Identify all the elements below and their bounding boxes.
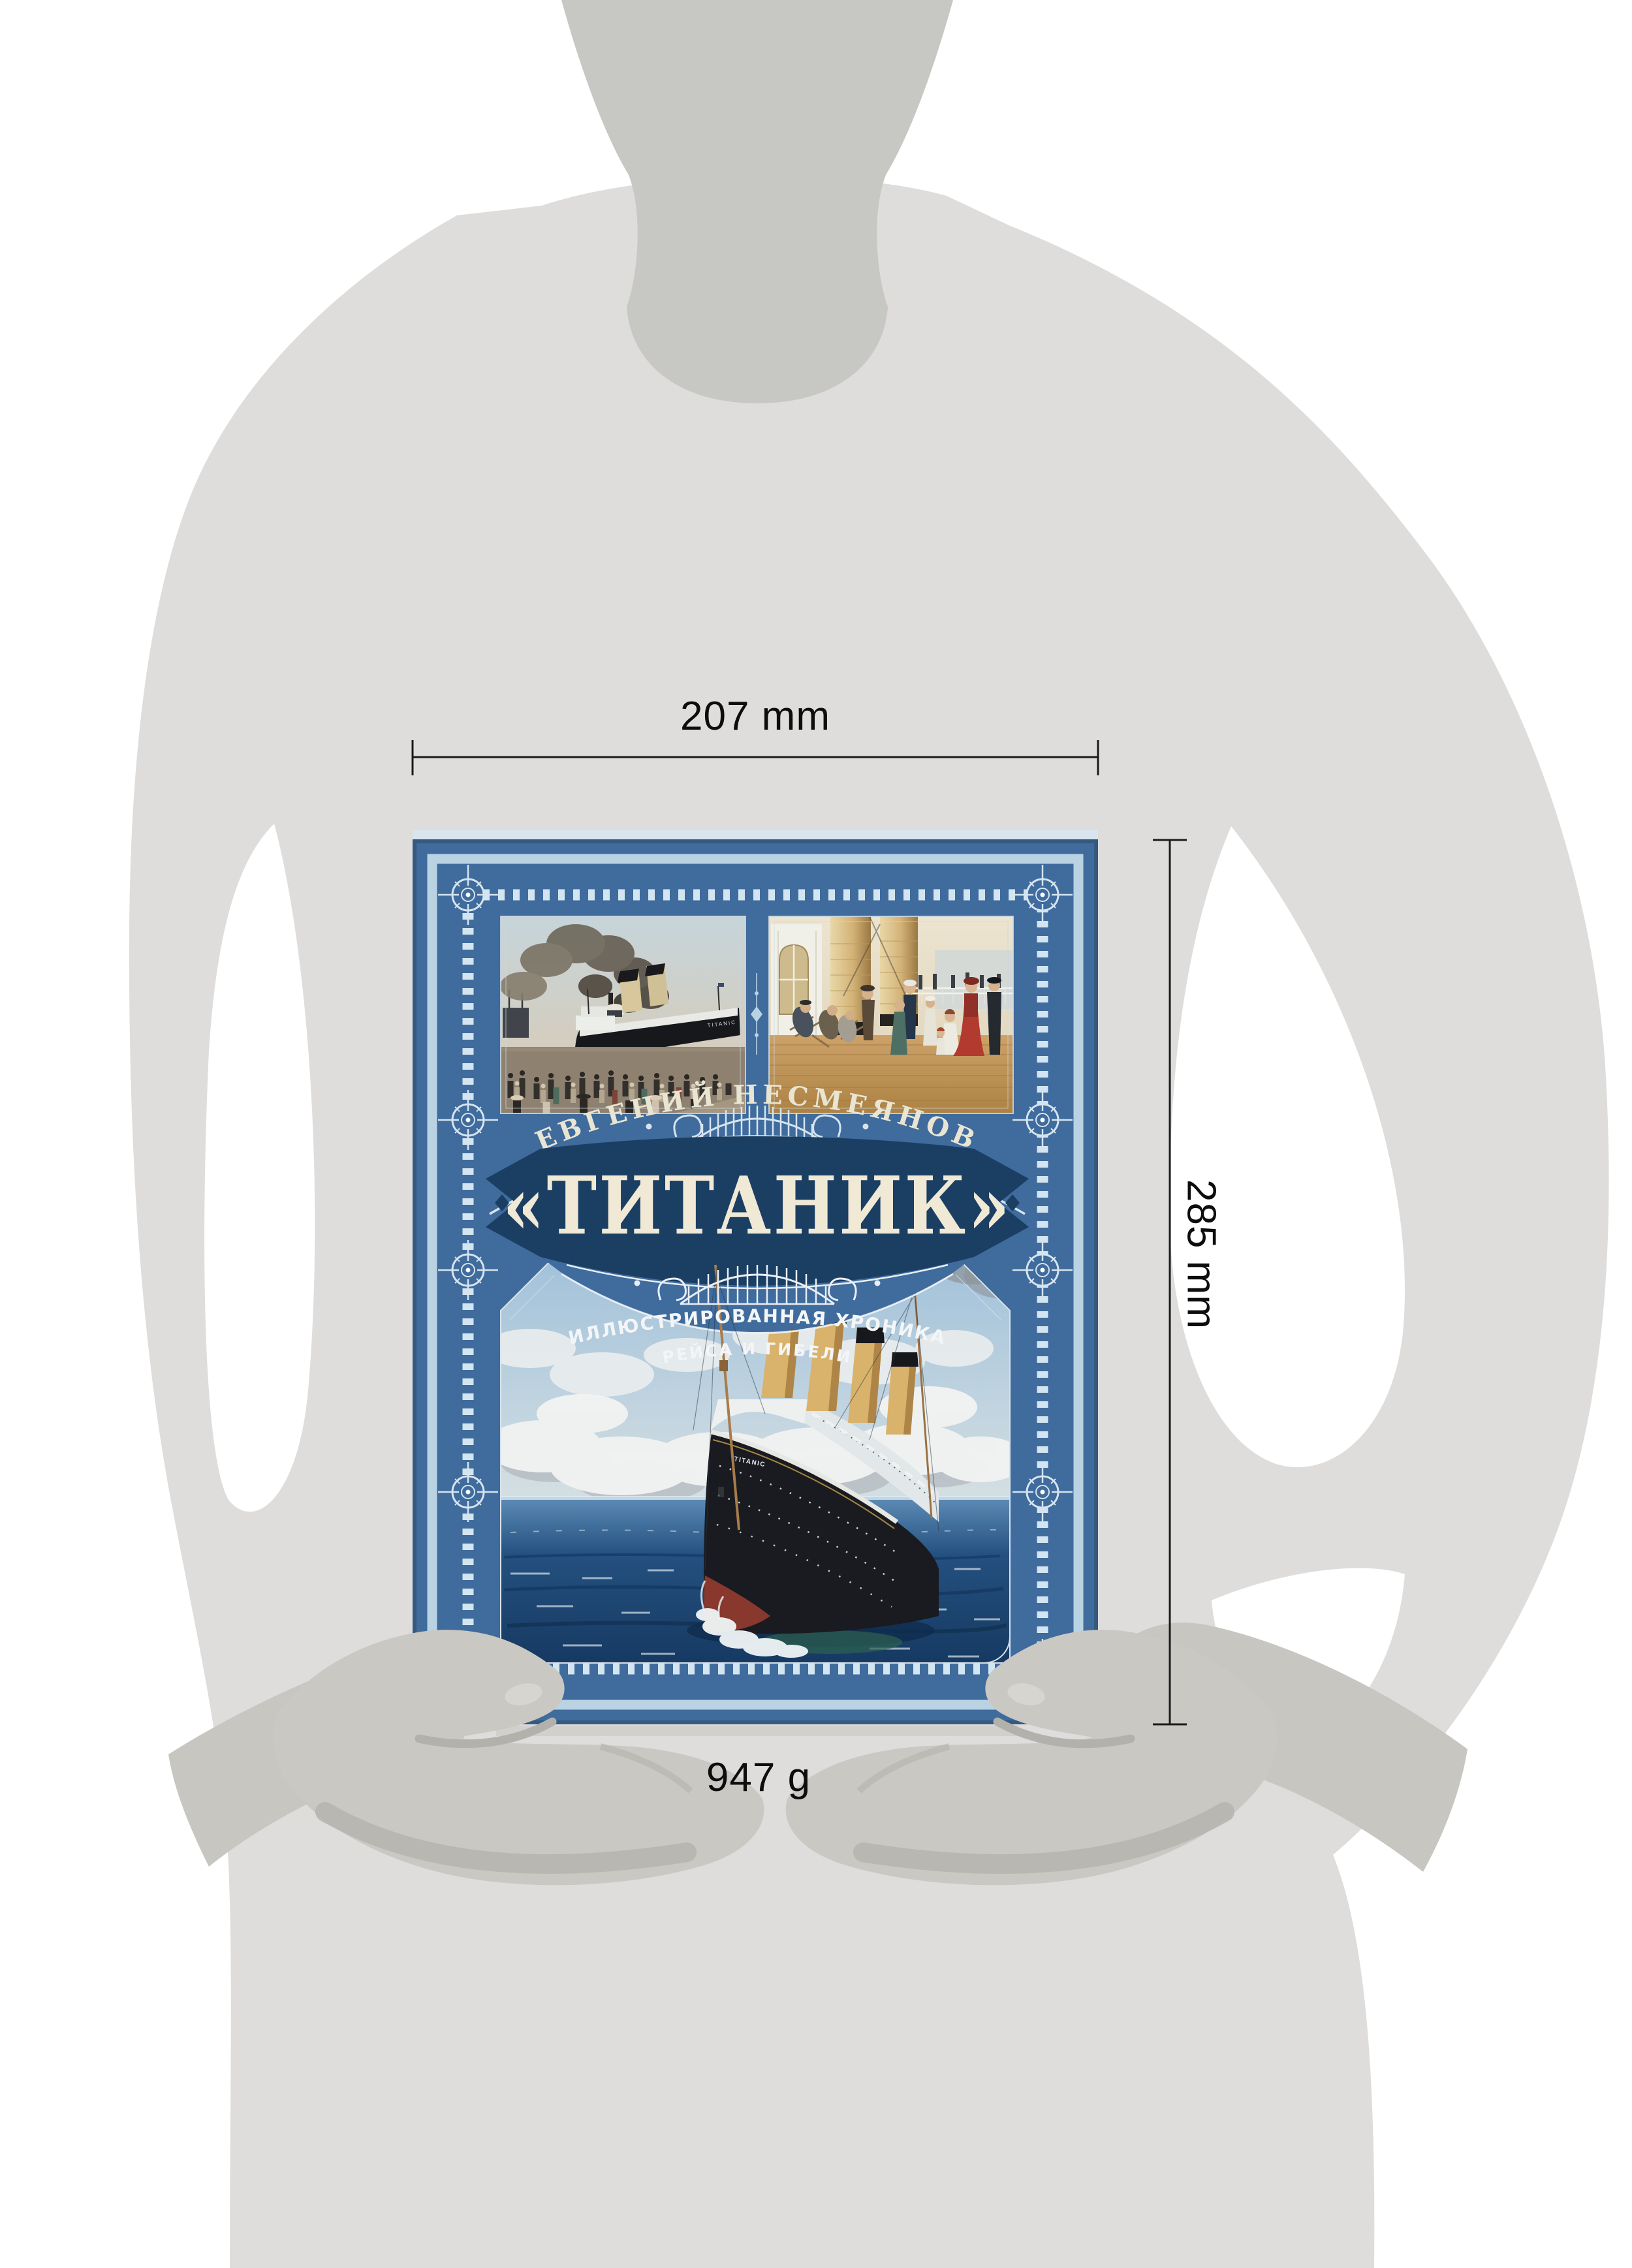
book-title: «ТИТАНИК» xyxy=(503,1158,1012,1252)
book-front-cover: TITANIC xyxy=(413,839,1098,1724)
weight-label: 947 g xyxy=(413,1754,1105,1801)
book-cover: TITANIC xyxy=(413,830,1098,1724)
product-measurement-screenshot: TITANIC xyxy=(0,0,1632,2268)
height-dimension-label: 285 mm xyxy=(1178,1179,1225,1329)
width-dimension-label: 207 mm xyxy=(413,693,1098,739)
crow-nest xyxy=(719,1360,728,1371)
